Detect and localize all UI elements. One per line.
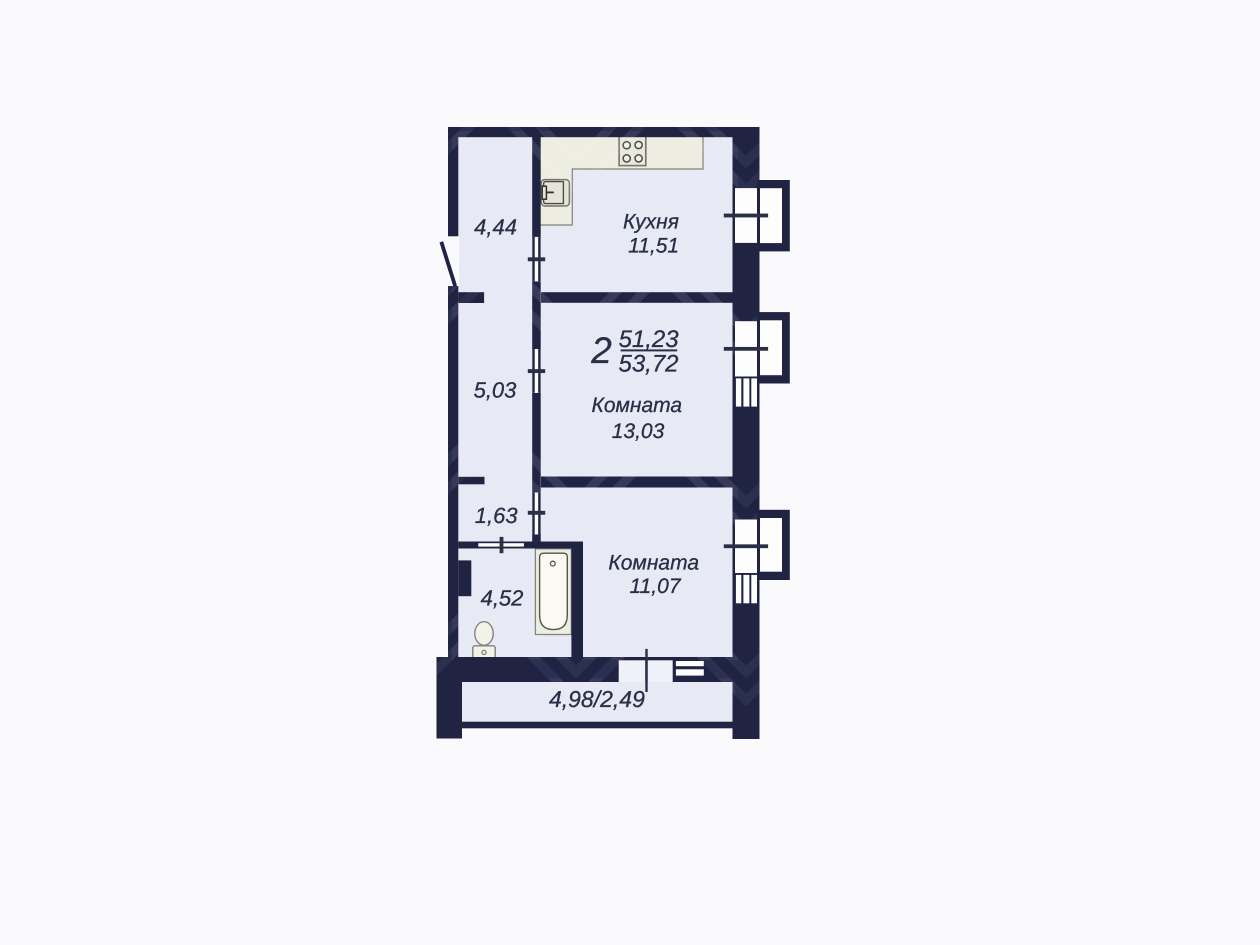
svg-text:Комната: Комната xyxy=(608,551,699,574)
svg-text:11,51: 11,51 xyxy=(628,235,679,258)
svg-text:4,98/2,49: 4,98/2,49 xyxy=(549,686,645,712)
svg-text:13,03: 13,03 xyxy=(612,420,665,443)
svg-text:51,23: 51,23 xyxy=(619,326,680,353)
svg-text:Комната: Комната xyxy=(591,394,682,417)
svg-text:Кухня: Кухня xyxy=(623,211,679,234)
svg-text:53,72: 53,72 xyxy=(618,350,678,377)
svg-text:5,03: 5,03 xyxy=(474,378,518,403)
svg-text:1,63: 1,63 xyxy=(475,503,519,528)
svg-text:4,44: 4,44 xyxy=(474,214,517,239)
svg-text:2: 2 xyxy=(590,330,612,371)
svg-text:4,52: 4,52 xyxy=(481,586,524,611)
svg-text:11,07: 11,07 xyxy=(630,575,682,598)
